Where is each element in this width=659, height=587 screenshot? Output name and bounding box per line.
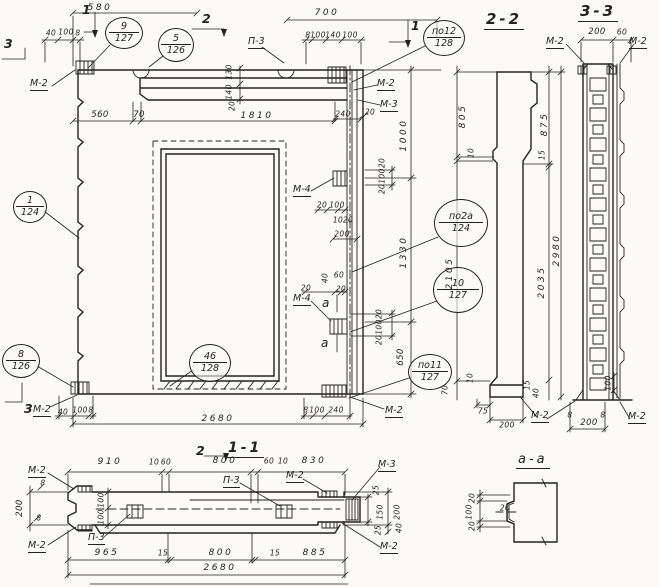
section-mark-a-upper: a: [322, 296, 329, 310]
section-mark-3-bottom: 3: [24, 401, 33, 416]
dim-22-805: 805: [458, 104, 468, 129]
dim-aa-20b: 20: [468, 521, 477, 531]
dim-22-40: 40: [532, 388, 541, 398]
dim-11-965: 965: [95, 548, 120, 558]
drawing-sheet: 580 700 40 100 8 8 100 140 100 560 70 18…: [0, 0, 659, 587]
dim-22-2105: 2105: [445, 257, 455, 290]
embed-label-p3-mid: П-3: [223, 475, 240, 488]
weld-label-m2-top-right: М-2: [377, 78, 395, 91]
dim-chain-1000: 1000: [399, 119, 409, 152]
dim-11-25b: 25: [374, 525, 383, 535]
dim-m4-20b: 20: [343, 216, 353, 225]
dim-stack2-20b: 20: [375, 335, 384, 345]
detail-a-a-profile: [507, 483, 557, 542]
dim-m4-200: 200: [334, 230, 350, 239]
weld-label-m4-upper: М-4: [293, 184, 311, 197]
callout-pos: 1: [14, 196, 46, 206]
dim-stack1-20b: 20: [378, 184, 387, 194]
dim-stack1-100: 100: [378, 168, 387, 184]
dim-11-15b: 15: [270, 549, 280, 558]
callout-pos: 10: [434, 279, 482, 289]
dim-22-875: 875: [540, 112, 550, 137]
callout-sheet: 127: [437, 289, 478, 301]
dim-11-40: 40: [395, 523, 404, 533]
dim-stack1-20a: 20: [378, 158, 387, 168]
dim-22-15b: 15: [523, 380, 532, 390]
callout-po2a-124: по2а 124: [434, 199, 488, 247]
callout-5-126: 5 126: [158, 28, 194, 62]
weld-label-m2-11-top-left: М-2: [28, 465, 46, 478]
dim-22-2035: 2035: [537, 266, 547, 299]
dim-22-200: 200: [499, 421, 515, 430]
callout-sheet: 124: [439, 222, 484, 234]
dim-tr-140: 140: [325, 31, 341, 40]
callout-pos: 8: [3, 350, 39, 360]
dim-11-10b: 10: [278, 457, 288, 466]
dim-22-75: 75: [478, 407, 488, 416]
dim-aa-20a: 20: [468, 493, 477, 503]
dim-11-100a: 100: [97, 492, 106, 508]
dim-bl-100: 100: [72, 406, 88, 415]
dim-11-8a: 8: [40, 479, 45, 488]
callout-pos: по11: [409, 361, 451, 371]
dim-m4-10: 10: [333, 216, 343, 225]
dim-22-15: 15: [538, 150, 547, 160]
dim-22-2980: 2980: [552, 234, 562, 267]
dim-560: 560: [91, 110, 108, 120]
callout-po12-128: по12 128: [423, 20, 465, 56]
section-mark-1-top-right: 1: [411, 18, 420, 33]
dim-11-15a: 15: [158, 549, 168, 558]
section-1-1-profile: [68, 486, 360, 533]
dim-33-60: 60: [617, 28, 627, 37]
dim-11-800b: 800: [209, 548, 234, 558]
callout-sheet: 127: [412, 371, 448, 383]
callout-9-127: 9 127: [105, 17, 143, 49]
section-1-1-detail: [78, 486, 358, 531]
dim-22-10: 10: [467, 148, 476, 158]
dim-top-580: 580: [88, 3, 113, 13]
dim-m4-20: 20: [317, 201, 327, 210]
dim-33-8a: 8: [567, 411, 572, 420]
weld-label-m2-33-bottom-right: М-2: [628, 411, 646, 424]
dim-top-700: 700: [315, 8, 340, 18]
dim-11-10a: 10: [149, 458, 159, 467]
callout-46-128: 46 128: [189, 344, 231, 382]
dim-tr-100b: 100: [342, 31, 358, 40]
callout-1-124: 1 124: [13, 191, 47, 223]
dim-11-2680: 2680: [204, 563, 237, 573]
dim-width-2680: 2680: [202, 414, 235, 424]
section-2-2-profile: [490, 72, 537, 397]
dim-11-25a: 25: [372, 485, 381, 495]
dim-33-200: 200: [588, 27, 605, 37]
callout-pos: 46: [190, 352, 230, 362]
dim-33-8b: 8: [600, 411, 605, 420]
weld-label-m2-33-top-right: М-2: [629, 36, 647, 49]
weld-label-m2-bottom-left: М-2: [33, 404, 51, 417]
callout-sheet: 128: [427, 37, 461, 49]
dim-11-150: 150: [376, 504, 385, 520]
callout-10-127: 10 127: [433, 267, 483, 313]
dim-1810: 1810: [241, 111, 274, 121]
dim-aa-100: 100: [465, 504, 474, 520]
dim-tl-100: 100: [58, 28, 74, 37]
dim-mid-20a: 20: [336, 285, 346, 294]
title-section-2-2: 2-2: [484, 10, 524, 30]
callout-sheet: 127: [109, 32, 140, 44]
weld-label-m3-11: М-3: [378, 459, 396, 472]
dim-20-top: 20: [365, 108, 375, 117]
dim-chain-1330: 1330: [399, 236, 409, 269]
dim-11-100b: 100: [97, 509, 106, 525]
dim-lintel-130: 130: [225, 64, 234, 80]
dim-33-200b: 200: [580, 418, 597, 428]
dim-240-top: 240: [335, 110, 351, 119]
dim-tl-40: 40: [46, 29, 56, 38]
callout-sheet: 126: [6, 360, 37, 372]
dim-stack2-20a: 20: [375, 309, 384, 319]
dim-br-100: 100: [309, 406, 325, 415]
dim-11-830: 830: [302, 456, 327, 466]
section-3-3-profile: [573, 64, 632, 400]
dim-70: 70: [133, 110, 145, 120]
weld-label-m2-bottom-right: М-2: [385, 405, 403, 418]
dim-stack2-100: 100: [375, 319, 384, 335]
dim-tr-100a: 100: [310, 31, 326, 40]
dim-11-60a: 60: [161, 458, 171, 467]
callout-sheet: 126: [161, 44, 190, 56]
dim-lintel-20: 20: [228, 101, 237, 111]
weld-label-m3-top-right: М-3: [380, 99, 398, 112]
dim-br-240: 240: [328, 406, 344, 415]
dim-m4-100: 100: [329, 201, 345, 210]
callout-pos: по2а: [435, 212, 487, 222]
callout-pos: 5: [159, 34, 193, 44]
weld-label-m2-22-bottom: М-2: [531, 410, 549, 423]
dim-mid-20b: 20: [301, 284, 311, 293]
weld-label-m2-11-mid: М-2: [286, 470, 304, 483]
dim-11-200l: 200: [15, 499, 25, 516]
callout-sheet: 128: [193, 362, 227, 374]
dim-11-910: 910: [98, 457, 123, 467]
section-mark-2-top: 2: [202, 11, 211, 26]
embed-label-p3-left: П-3: [88, 532, 105, 545]
dim-tl-8: 8: [75, 29, 80, 38]
title-detail-a-a: а-а: [516, 452, 550, 469]
dim-11-200r: 200: [393, 504, 402, 520]
weld-label-m2-33-top-left: М-2: [546, 36, 564, 49]
callout-sheet: 124: [16, 206, 44, 218]
dim-11-8b: 8: [36, 514, 41, 523]
dim-33-100: 100: [604, 375, 613, 391]
dim-chain-650: 650: [396, 348, 406, 365]
dim-11-885: 885: [303, 548, 328, 558]
weld-label-m4-lower: М-4: [293, 293, 311, 306]
section-mark-2-bottom: 2: [196, 443, 205, 458]
dim-br-8: 8: [303, 406, 308, 415]
callout-pos: 9: [106, 22, 142, 32]
dim-11-800t: 800: [213, 456, 238, 466]
dim-lintel-140: 140: [225, 84, 234, 100]
dim-bl-40: 40: [58, 408, 68, 417]
section-mark-1-top-left: 1: [82, 2, 91, 17]
dim-bl-8: 8: [88, 406, 93, 415]
callout-8-126: 8 126: [2, 344, 40, 378]
dim-mid-40: 40: [321, 273, 330, 283]
dim-aa-notch-20: 20: [500, 504, 510, 513]
callout-pos: по12: [424, 27, 464, 37]
dim-22-70: 70: [441, 385, 450, 395]
section-mark-3-top: 3: [4, 36, 13, 51]
section-mark-a-lower: a: [321, 336, 328, 350]
dim-mid-60: 60: [334, 271, 344, 280]
title-section-3-3: 3-3: [578, 2, 618, 22]
weld-label-m2-top-left: М-2: [30, 78, 48, 91]
dim-22-10b: 10: [466, 373, 475, 383]
embed-label-p3: П-3: [248, 36, 265, 49]
dim-11-60b: 60: [264, 457, 274, 466]
weld-label-m2-11-bottom-left: М-2: [28, 540, 46, 553]
weld-label-m2-11-bottom-right: М-2: [380, 541, 398, 554]
